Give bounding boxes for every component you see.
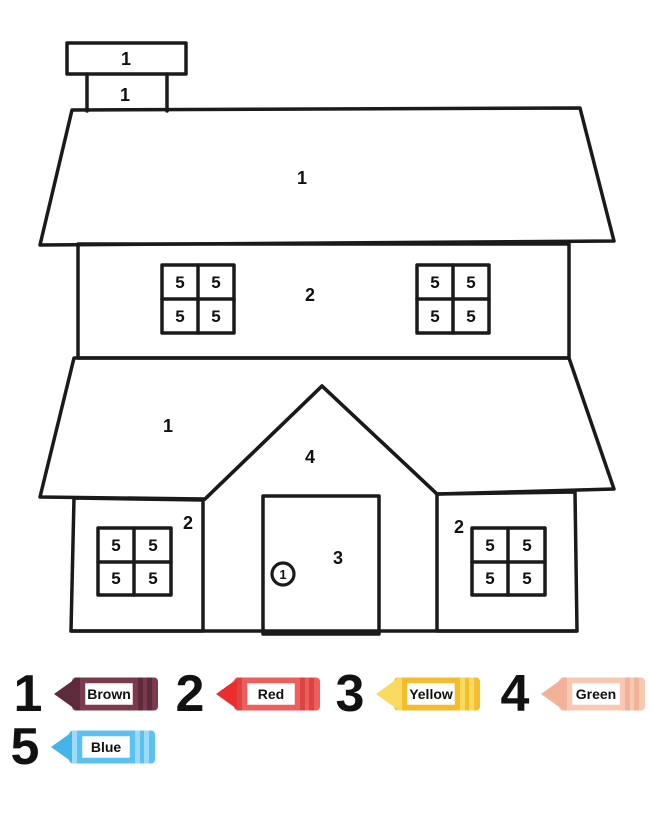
window-lower-right[interactable] xyxy=(472,528,545,595)
pane-number: 5 xyxy=(211,273,220,292)
pane-number: 5 xyxy=(148,536,157,555)
legend-number-1: 1 xyxy=(6,673,50,715)
chimney-cap-number: 1 xyxy=(121,49,131,69)
pane-number: 5 xyxy=(522,536,531,555)
crayon-icon-red: Red xyxy=(214,674,324,714)
pane-number: 5 xyxy=(111,569,120,588)
gable-region[interactable] xyxy=(205,386,437,499)
legend-number-4: 4 xyxy=(493,673,537,715)
legend-item-brown: 1 Brown xyxy=(6,673,162,715)
crayon-icon-yellow: Yellow xyxy=(374,674,484,714)
crayon-icon-brown: Brown xyxy=(52,674,162,714)
main-roof-region[interactable] xyxy=(40,108,614,245)
crayon-icon-green: Green xyxy=(539,674,649,714)
window-lower-left[interactable] xyxy=(98,528,171,595)
window-upper-left[interactable] xyxy=(162,265,234,333)
second-floor-region[interactable] xyxy=(78,244,569,358)
pane-number: 5 xyxy=(148,569,157,588)
legend-color-name: Red xyxy=(258,686,284,702)
window-upper-right[interactable] xyxy=(417,265,489,333)
pane-number: 5 xyxy=(466,273,475,292)
door-number: 3 xyxy=(333,548,343,568)
legend-color-name: Green xyxy=(576,686,616,702)
crayon-icon-blue: Blue xyxy=(49,727,159,767)
legend-item-red: 2 Red xyxy=(168,673,324,715)
lower-roof-number: 1 xyxy=(163,416,173,436)
first-floor-right-number: 2 xyxy=(454,517,464,537)
pane-number: 5 xyxy=(430,273,439,292)
pane-number: 5 xyxy=(430,307,439,326)
legend-number-3: 3 xyxy=(328,673,372,715)
chimney-body-number: 1 xyxy=(120,85,130,105)
door-region[interactable] xyxy=(263,496,379,634)
pane-number: 5 xyxy=(111,536,120,555)
gable-number: 4 xyxy=(305,447,315,467)
legend-item-green: 4 Green xyxy=(493,673,649,715)
legend-number-5: 5 xyxy=(3,726,47,768)
doorknob-number: 1 xyxy=(279,567,286,582)
house-drawing: 1 1 1 2 5 5 5 5 5 5 5 5 xyxy=(0,0,654,660)
second-floor-number: 2 xyxy=(305,285,315,305)
legend-item-yellow: 3 Yellow xyxy=(328,673,484,715)
pane-number: 5 xyxy=(485,569,494,588)
legend-color-name: Blue xyxy=(91,739,122,755)
pane-number: 5 xyxy=(175,307,184,326)
legend-item-blue: 5 Blue xyxy=(3,726,159,768)
pane-number: 5 xyxy=(466,307,475,326)
coloring-page: 1 1 1 2 5 5 5 5 5 5 5 5 xyxy=(0,0,654,824)
first-floor-left-number: 2 xyxy=(183,513,193,533)
pane-number: 5 xyxy=(175,273,184,292)
main-roof-number: 1 xyxy=(297,168,307,188)
pane-number: 5 xyxy=(485,536,494,555)
legend-number-2: 2 xyxy=(168,673,212,715)
legend-color-name: Yellow xyxy=(409,686,453,702)
legend-color-name: Brown xyxy=(87,686,131,702)
lower-roof-region[interactable] xyxy=(40,358,614,499)
pane-number: 5 xyxy=(211,307,220,326)
pane-number: 5 xyxy=(522,569,531,588)
